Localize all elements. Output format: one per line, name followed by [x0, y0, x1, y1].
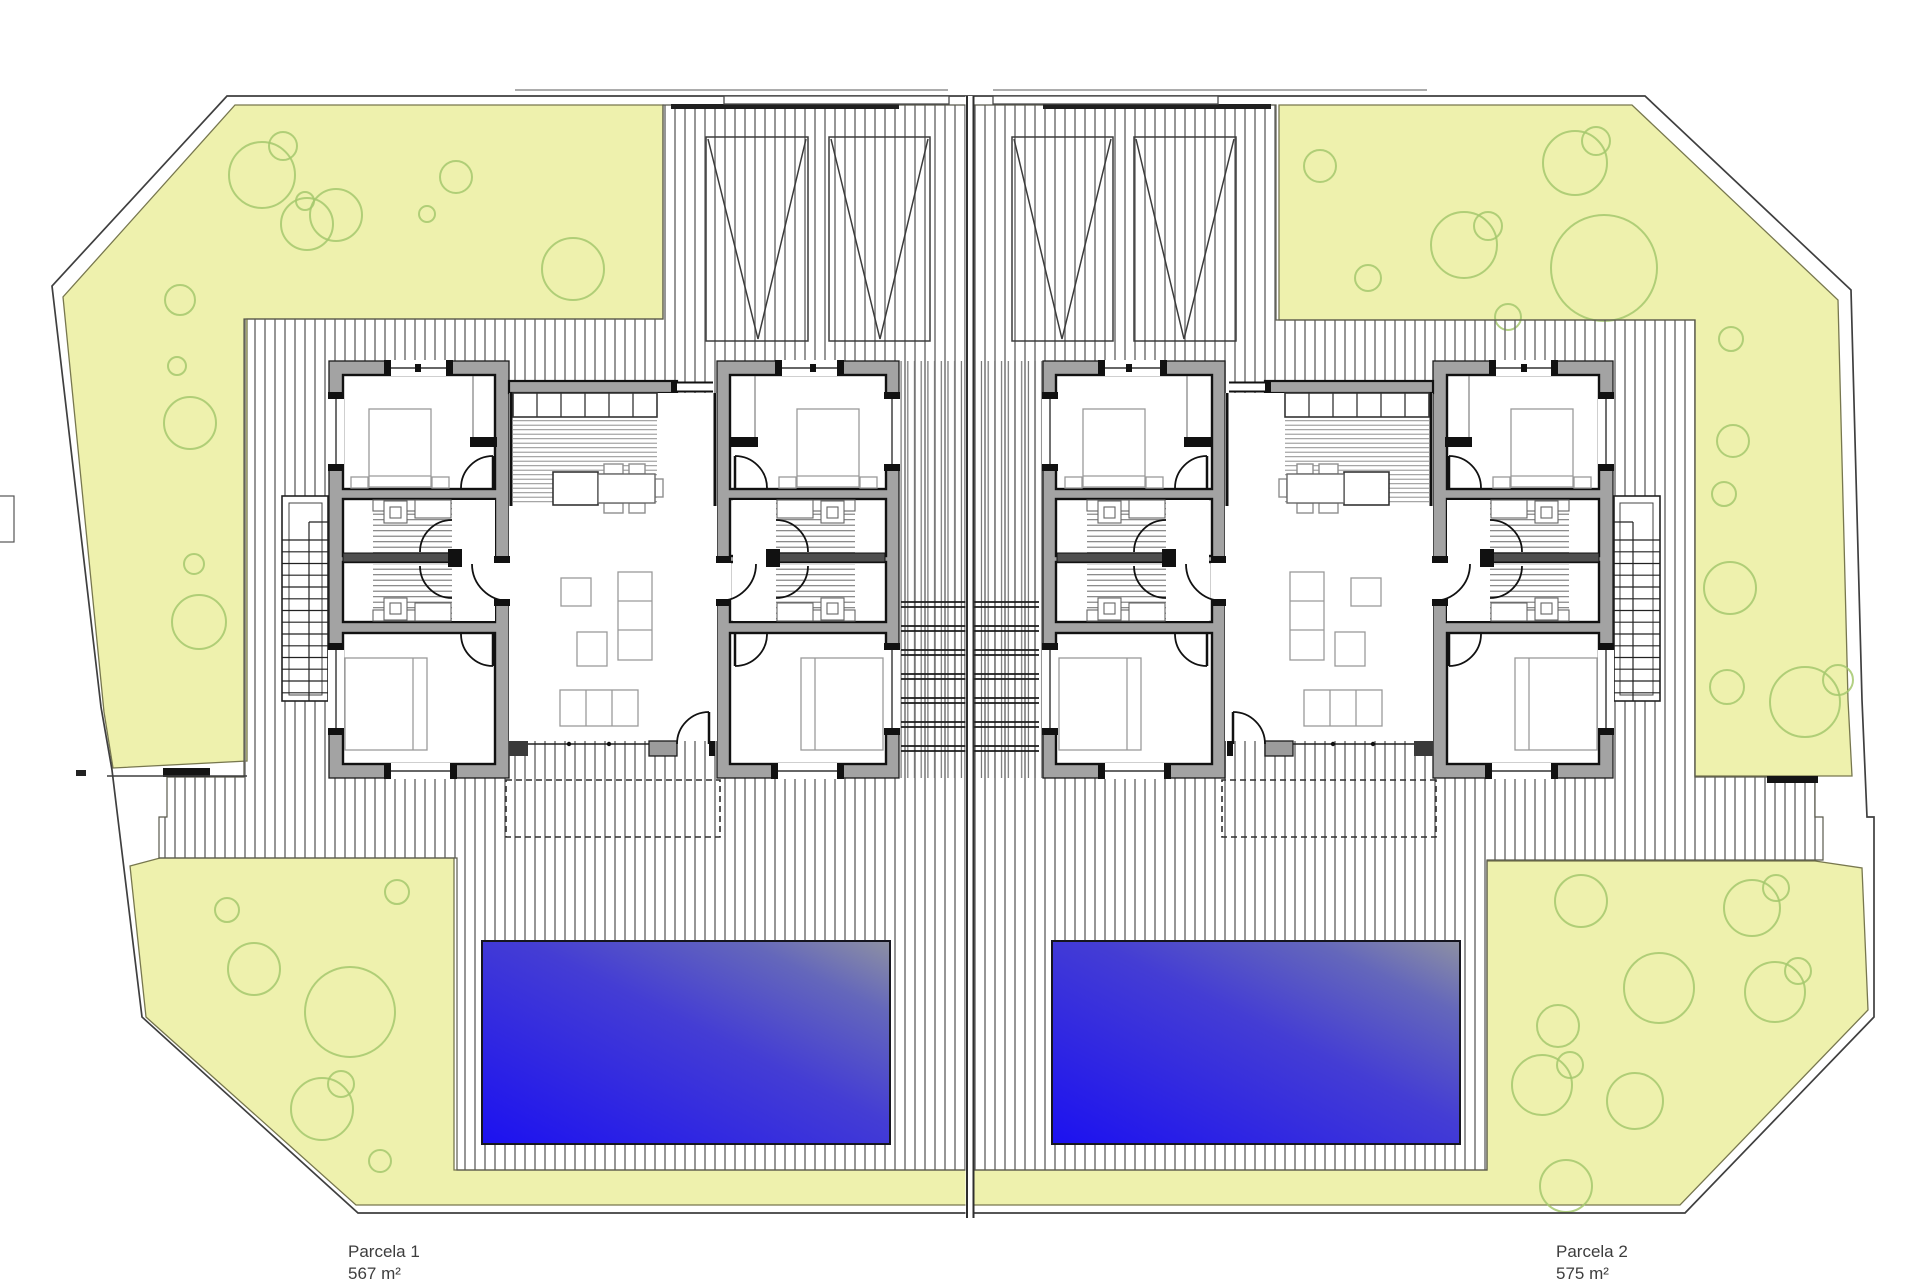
- svg-text:Parcela 1: Parcela 1: [348, 1242, 420, 1261]
- svg-text:575 m²: 575 m²: [1556, 1264, 1609, 1280]
- svg-text:567 m²: 567 m²: [348, 1264, 401, 1280]
- svg-text:Parcela 2: Parcela 2: [1556, 1242, 1628, 1261]
